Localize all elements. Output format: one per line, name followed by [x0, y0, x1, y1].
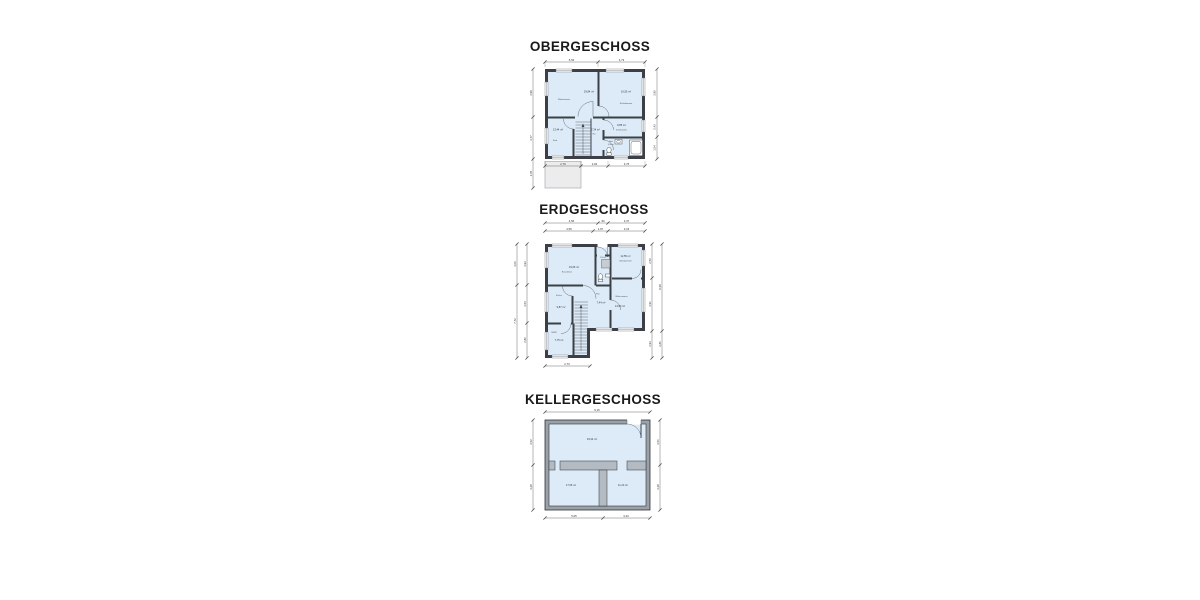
room-area-keller2: 17,06 m²	[566, 483, 576, 487]
floorplan-sheet: OBERGESCHOSS	[0, 0, 1200, 600]
erdgeschoss-plan: ERDGESCHOSS	[513, 202, 664, 368]
kellergeschoss-plan: KELLERGESCHOSS 33,24 m² 17,06 m² 11,23 m…	[525, 392, 662, 520]
room-area-hwr: 7,75 m²	[555, 338, 564, 342]
room-label-wohnzimmer-og: Wohnzimmer	[558, 98, 571, 101]
og-dim-right-1: 3,90	[653, 90, 657, 96]
erdgeschoss-title: ERDGESCHOSS	[539, 202, 648, 217]
og-dim-top-2: 3,73	[619, 58, 625, 62]
eg-dim-leftinner-2: 3,53	[523, 301, 527, 307]
og-dim-top-1: 5,53	[569, 58, 575, 62]
room-area-esszimmer: 19,05 m²	[569, 265, 579, 269]
og-dim-bottom-1: 2,79	[560, 162, 566, 166]
room-label-hwr: HWR	[552, 332, 557, 334]
room-label-flur-og: Flur	[592, 134, 595, 136]
kellergeschoss-title: KELLERGESCHOSS	[525, 392, 661, 407]
obergeschoss-title: OBERGESCHOSS	[530, 39, 650, 54]
room-label-esszimmer: Esszimmer	[562, 271, 573, 274]
eg-dim-top2-3: 3,15	[624, 227, 630, 231]
og-dim-bottom-2: 2,62	[592, 162, 598, 166]
room-area-schlafzimmer1-og: 16,55 m²	[621, 90, 631, 94]
room-area-flur-og: 7,34 m²	[591, 128, 600, 132]
room-label-schlafzimmer-eg: Schlafzimmer	[619, 260, 632, 263]
og-dim-bottom-3: 3,76	[624, 162, 630, 166]
kg-dim-top-1: 9,15	[594, 408, 600, 412]
room-area-schlafzimmer2-og: 9,85 m²	[617, 123, 626, 127]
eg-dim-leftinner-3: 2,86	[523, 337, 527, 343]
floor-plans-svg: OBERGESCHOSS	[0, 0, 1200, 600]
room-label-kueche: Küche	[556, 295, 563, 297]
kg-dim-right-1: 3,51	[656, 439, 660, 445]
og-dim-right-3: 1,54	[653, 145, 657, 151]
eg-dim-top2-2: 1,97	[598, 227, 604, 231]
eg-dim-rightouter-2: 2,86	[658, 341, 662, 347]
room-label-schlafzimmer2-og: Schlafzimmer	[616, 130, 627, 132]
eg-dim-leftouter-2: 7,72	[513, 318, 517, 324]
room-area-wc: 2,63 m²	[600, 256, 606, 259]
eg-dim-leftinner-1: 3,93	[523, 261, 527, 267]
eg-dim-bottom-1: 2,73	[564, 362, 570, 366]
room-area-keller3: 11,23 m²	[618, 483, 628, 487]
room-label-wohnzimmer-eg: Wohnzimmer	[615, 295, 628, 298]
eg-dim-top1-2: 90	[601, 219, 605, 223]
obergeschoss-plan: OBERGESCHOSS	[529, 39, 659, 190]
eg-dim-rightinner-3: 2,93	[648, 341, 652, 347]
room-label-bad-og: Bad	[609, 141, 612, 143]
eg-dim-leftouter-1: 3,06	[513, 261, 517, 267]
kg-dim-bottom-1: 5,05	[571, 514, 577, 518]
room-area-wohnzimmer-eg: 14,50 m²	[615, 304, 625, 308]
kg-dim-left-2: 3,28	[529, 484, 533, 490]
room-label-schlafzimmer1-og: Schlafzimmer	[620, 102, 633, 105]
eg-dim-rightouter-1: 8,49	[658, 284, 662, 290]
room-area-keller1: 33,24 m²	[587, 437, 597, 441]
kg-dim-right-2: 3,28	[656, 484, 660, 490]
og-dim-right-2: 2,43	[653, 124, 657, 130]
og-outer-walls	[547, 71, 644, 158]
kg-dim-bottom-2: 3,43	[623, 514, 629, 518]
room-area-kind-og: 13,44 m²	[553, 128, 563, 132]
og-dim-left-2: 3,77	[529, 135, 533, 141]
room-area-kueche: 9,87 m²	[557, 305, 566, 309]
room-area-flur-eg: 7,44 m²	[597, 301, 606, 305]
og-dim-left-1: 3,98	[529, 90, 533, 96]
og-dim-left-3: 2,65	[529, 170, 533, 176]
kg-dim-left-1: 3,52	[529, 439, 533, 445]
room-area-bad-og: 4,06 m²	[608, 143, 614, 146]
eg-dim-rightinner-1: 2,50	[648, 258, 652, 264]
room-area-wohnzimmer-og: 29,84 m²	[584, 90, 594, 94]
eg-dim-top2-1: 4,56	[566, 227, 572, 231]
eg-dim-top1-3: 3,37	[624, 219, 630, 223]
room-label-flur-eg: Flur	[596, 293, 600, 296]
room-area-schlafzimmer-eg: 12,55 m²	[620, 254, 630, 258]
eg-dim-top1-1: 4,56	[569, 219, 575, 223]
eg-dim-rightinner-2: 3,91	[648, 301, 652, 307]
